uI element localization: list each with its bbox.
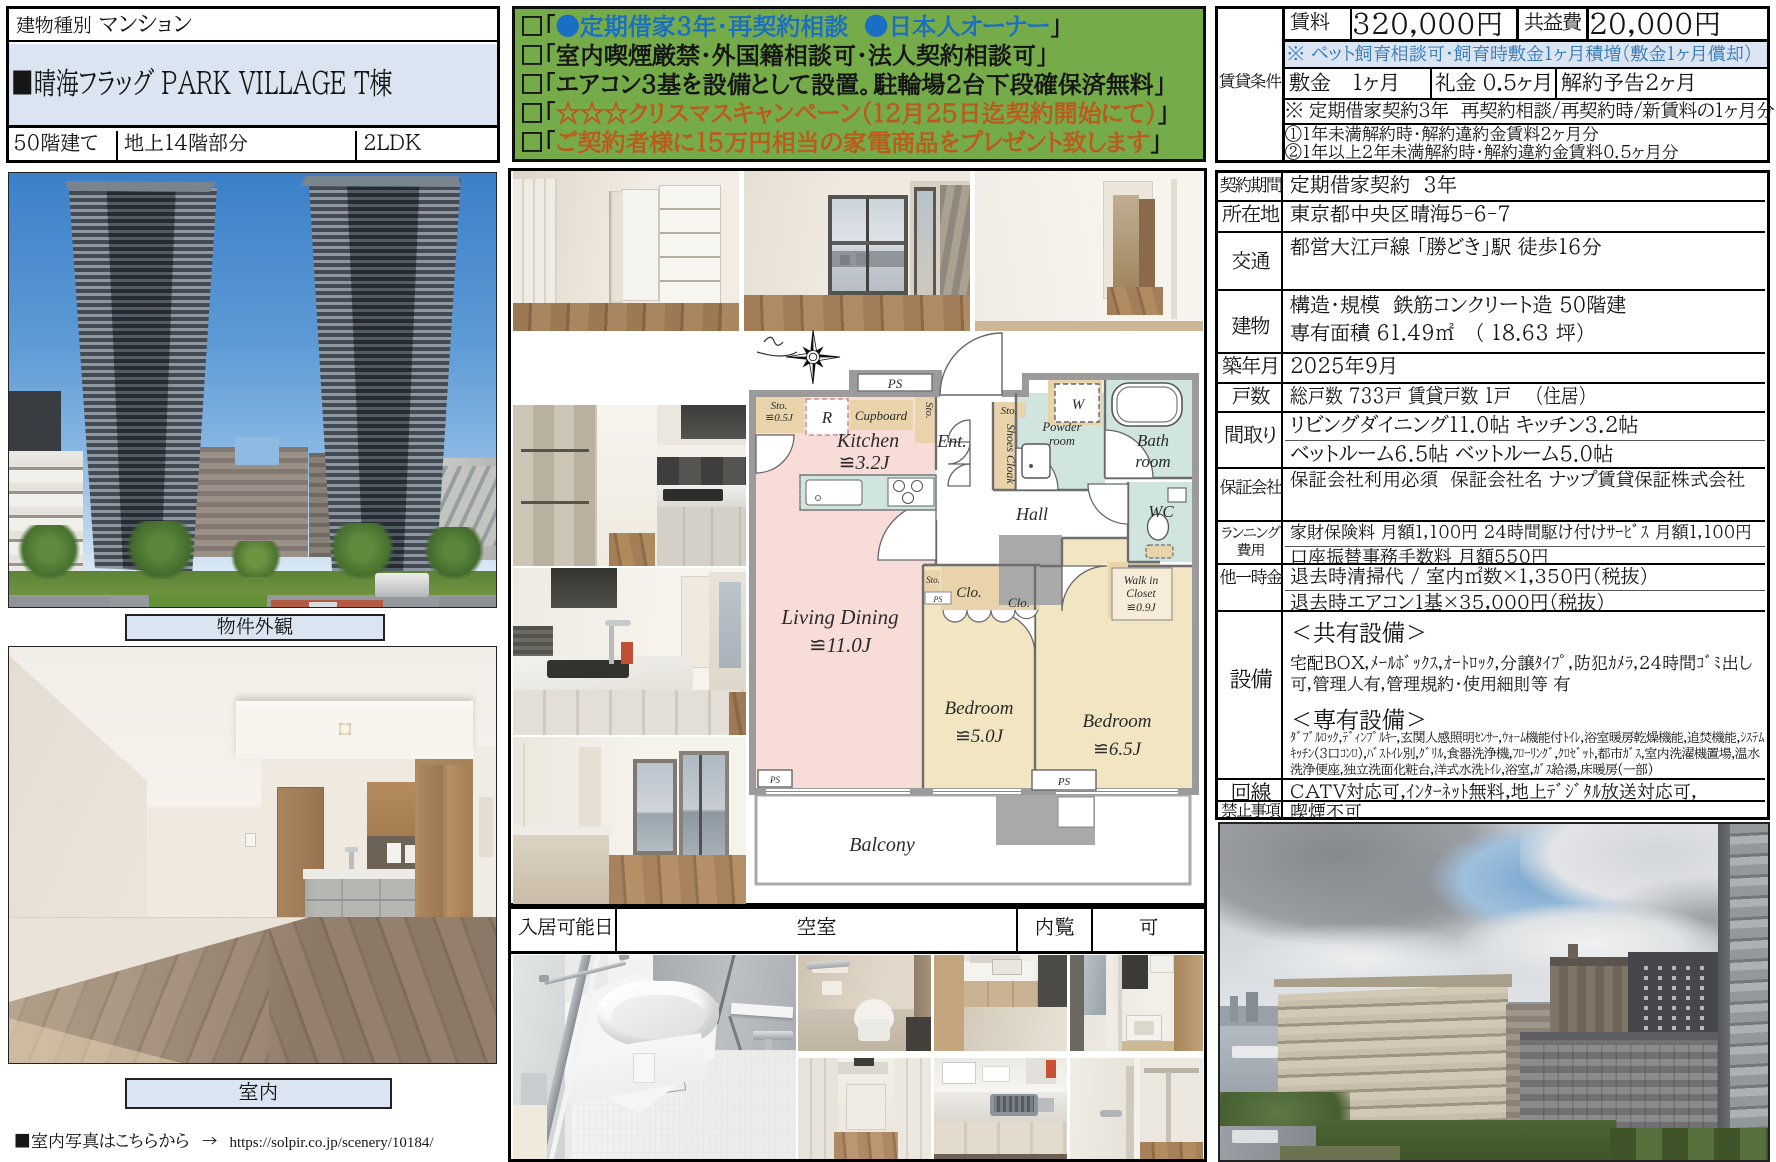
svg-text:≌3.2J: ≌3.2J xyxy=(839,452,891,474)
svg-text:Sto.: Sto. xyxy=(926,575,940,585)
svg-text:W: W xyxy=(1072,397,1086,413)
svg-text:≌11.0J: ≌11.0J xyxy=(809,633,873,657)
svg-text:Sto.: Sto. xyxy=(923,402,935,419)
svg-text:PS: PS xyxy=(1057,776,1071,788)
svg-text:Living Dining: Living Dining xyxy=(780,605,898,629)
svg-text:room: room xyxy=(1135,452,1170,471)
svg-text:Bath: Bath xyxy=(1137,431,1169,450)
svg-text:room: room xyxy=(1049,434,1075,448)
svg-text:Balcony: Balcony xyxy=(849,834,915,856)
svg-text:≌0.9J: ≌0.9J xyxy=(1126,602,1156,614)
svg-text:Cupboard: Cupboard xyxy=(855,408,908,423)
svg-text:PS: PS xyxy=(769,775,780,785)
svg-text:Bedroom: Bedroom xyxy=(945,698,1014,719)
svg-text:≌0.5J: ≌0.5J xyxy=(765,412,794,424)
svg-text:≌6.5J: ≌6.5J xyxy=(1093,739,1143,760)
svg-text:Clo.: Clo. xyxy=(956,585,981,601)
svg-text:Closet: Closet xyxy=(1126,588,1156,600)
svg-text:PS: PS xyxy=(933,595,943,604)
svg-text:Powder: Powder xyxy=(1042,420,1082,434)
svg-text:WC: WC xyxy=(1148,502,1174,521)
svg-text:PS: PS xyxy=(887,376,903,391)
svg-text:Hall: Hall xyxy=(1015,504,1048,524)
svg-text:Sto.: Sto. xyxy=(1001,405,1018,417)
svg-text:≌5.0J: ≌5.0J xyxy=(955,726,1005,747)
svg-text:Kitchen: Kitchen xyxy=(836,430,899,452)
svg-text:Walk in: Walk in xyxy=(1124,575,1159,587)
svg-text:Ent.: Ent. xyxy=(936,431,967,451)
svg-text:Bedroom: Bedroom xyxy=(1083,711,1152,732)
svg-text:Clo.: Clo. xyxy=(1008,595,1030,610)
svg-text:R: R xyxy=(821,408,833,427)
svg-text:Sto.: Sto. xyxy=(771,400,788,412)
svg-text:Shoes Cloak: Shoes Cloak xyxy=(1004,424,1018,484)
